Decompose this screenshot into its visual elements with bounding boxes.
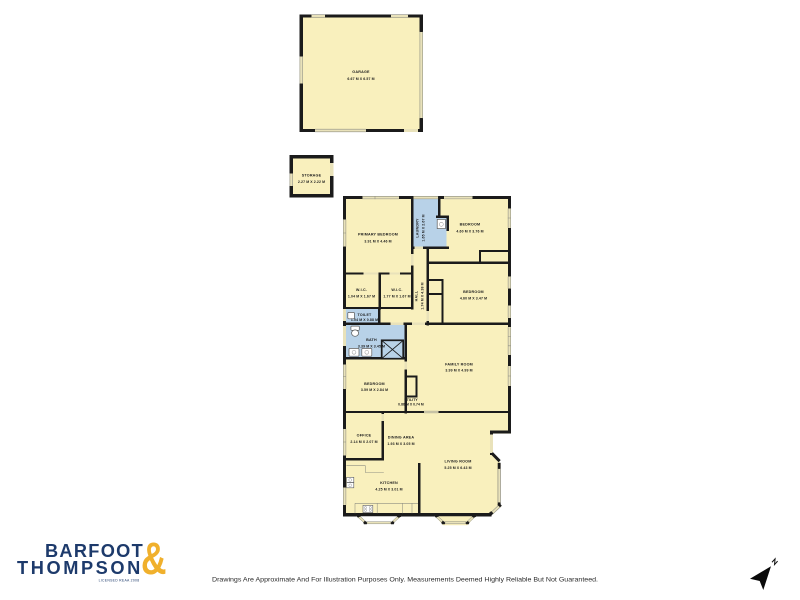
svg-text:W.I.C.: W.I.C. <box>356 288 367 292</box>
svg-text:BATH: BATH <box>366 338 377 342</box>
svg-text:4.25 M X 3.01 M: 4.25 M X 3.01 M <box>375 488 402 492</box>
svg-text:W.I.C.: W.I.C. <box>391 288 402 292</box>
svg-text:0.86 M X 0.74 M: 0.86 M X 0.74 M <box>398 402 424 406</box>
svg-text:HALL: HALL <box>415 290 419 301</box>
svg-text:LAUNDRY: LAUNDRY <box>416 218 420 238</box>
svg-text:4.60 M X 3.76 M: 4.60 M X 3.76 M <box>456 230 483 234</box>
svg-text:1.74 M X 4.38 M: 1.74 M X 4.38 M <box>421 282 425 309</box>
svg-text:&: & <box>141 533 167 584</box>
svg-text:6.67 M X 6.57 M: 6.67 M X 6.57 M <box>347 77 374 81</box>
svg-text:2.27 M X 2.22 M: 2.27 M X 2.22 M <box>298 180 325 184</box>
svg-text:UTILITY: UTILITY <box>404 398 418 402</box>
svg-text:5.25 M X 6.43 M: 5.25 M X 6.43 M <box>444 466 471 470</box>
svg-text:1.04 M X 1.67 M: 1.04 M X 1.67 M <box>348 295 375 299</box>
svg-text:BEDROOM: BEDROOM <box>463 290 484 294</box>
svg-text:3.91 M X 4.46 M: 3.91 M X 4.46 M <box>364 240 391 244</box>
svg-text:4.60 M X 3.47 M: 4.60 M X 3.47 M <box>460 297 487 301</box>
svg-text:1.65 M X 2.67 M: 1.65 M X 2.67 M <box>422 214 426 241</box>
svg-text:LIVING ROOM: LIVING ROOM <box>445 460 472 464</box>
svg-text:3.59 M X 2.84 M: 3.59 M X 2.84 M <box>361 388 388 392</box>
svg-text:STORAGE: STORAGE <box>302 174 322 178</box>
svg-text:3.99 M X 4.99 M: 3.99 M X 4.99 M <box>445 369 472 373</box>
svg-text:1.93 M X 3.05 M: 1.93 M X 3.05 M <box>387 442 414 446</box>
svg-text:LICENSED REAA 2008: LICENSED REAA 2008 <box>99 579 140 583</box>
svg-text:PRIMARY BEDROOM: PRIMARY BEDROOM <box>358 233 398 237</box>
svg-text:GARAGE: GARAGE <box>352 70 370 74</box>
svg-text:BEDROOM: BEDROOM <box>364 382 385 386</box>
svg-text:TOILET: TOILET <box>358 313 373 317</box>
svg-text:3.39 M X 3.45 M: 3.39 M X 3.45 M <box>358 345 385 349</box>
svg-text:Drawings Are Approximate And F: Drawings Are Approximate And For Illustr… <box>212 577 598 584</box>
svg-text:OFFICE: OFFICE <box>357 434 372 438</box>
svg-text:THOMPSON: THOMPSON <box>17 558 143 578</box>
svg-text:DINING AREA: DINING AREA <box>388 436 415 440</box>
svg-text:FAMILY ROOM: FAMILY ROOM <box>445 363 473 367</box>
svg-text:BEDROOM: BEDROOM <box>460 223 481 227</box>
svg-text:KITCHEN: KITCHEN <box>380 481 398 485</box>
svg-text:2.14 M X 2.07 M: 2.14 M X 2.07 M <box>350 440 377 444</box>
svg-text:1.04 M X 0.88 M: 1.04 M X 0.88 M <box>351 318 378 322</box>
svg-text:1.77 M X 1.67 M: 1.77 M X 1.67 M <box>383 295 410 299</box>
